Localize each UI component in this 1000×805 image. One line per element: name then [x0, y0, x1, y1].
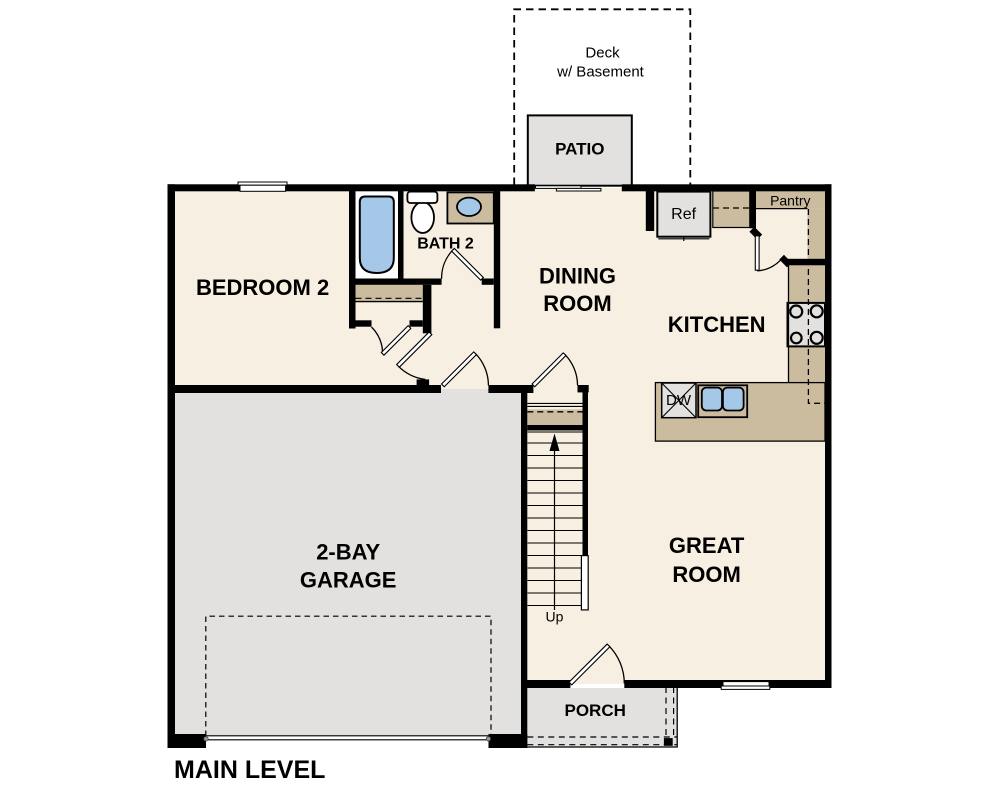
svg-text:DW: DW	[666, 392, 692, 409]
svg-text:GREAT: GREAT	[669, 533, 745, 558]
svg-text:BATH 2: BATH 2	[417, 235, 474, 252]
svg-text:DINING: DINING	[539, 264, 616, 289]
svg-text:BEDROOM 2: BEDROOM 2	[196, 275, 329, 300]
svg-text:ROOM: ROOM	[672, 562, 740, 587]
svg-text:PATIO: PATIO	[555, 140, 604, 159]
svg-text:ROOM: ROOM	[543, 291, 611, 316]
svg-text:GARAGE: GARAGE	[300, 568, 397, 593]
svg-text:Up: Up	[546, 609, 564, 625]
svg-text:2-BAY: 2-BAY	[316, 540, 380, 565]
svg-text:Pantry: Pantry	[770, 193, 810, 209]
svg-text:w/ Basement: w/ Basement	[556, 63, 645, 80]
svg-text:Deck: Deck	[585, 45, 620, 62]
svg-text:PORCH: PORCH	[564, 701, 625, 720]
svg-text:Ref: Ref	[671, 206, 696, 223]
svg-text:MAIN LEVEL: MAIN LEVEL	[174, 756, 325, 784]
svg-text:KITCHEN: KITCHEN	[668, 312, 766, 337]
